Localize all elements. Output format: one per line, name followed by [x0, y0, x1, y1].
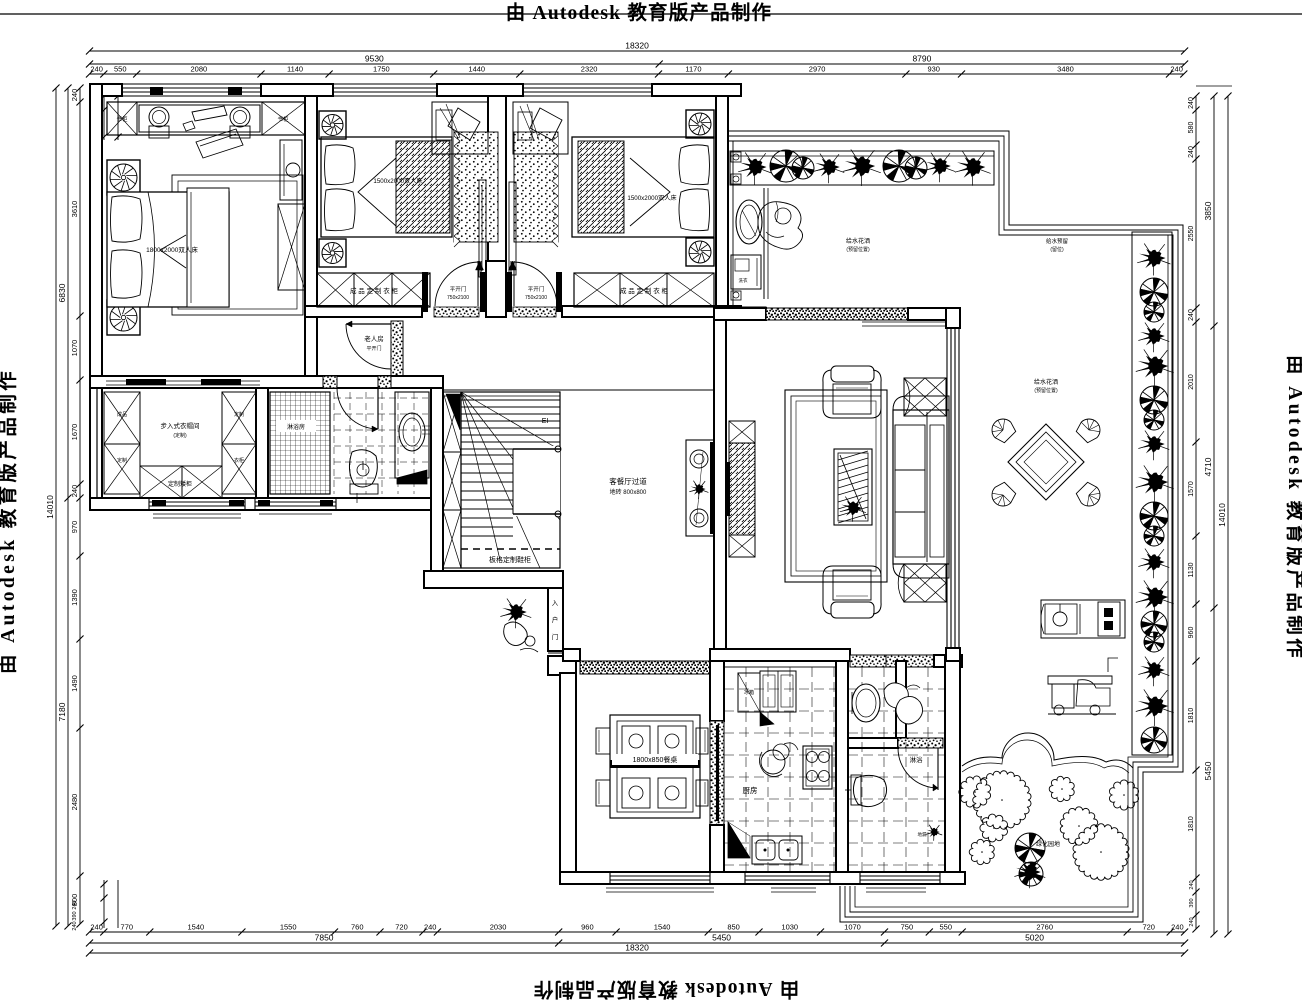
svg-text:770: 770 [121, 923, 134, 932]
svg-text:衣柜: 衣柜 [234, 457, 244, 464]
svg-text:960: 960 [1188, 627, 1195, 639]
svg-text:1810: 1810 [1188, 816, 1195, 832]
svg-text:240: 240 [90, 923, 103, 932]
svg-text:1030: 1030 [781, 923, 798, 932]
svg-text:定制: 定制 [234, 411, 244, 418]
svg-text:1490: 1490 [70, 675, 79, 692]
svg-text:由 Autodesk 教育版产品制作: 由 Autodesk 教育版产品制作 [506, 1, 772, 24]
svg-text:1570: 1570 [1188, 481, 1195, 497]
svg-text:580: 580 [1188, 122, 1195, 134]
svg-text:240: 240 [1188, 97, 1195, 109]
svg-text:240: 240 [1188, 146, 1195, 158]
svg-text:老人房: 老人房 [364, 334, 384, 343]
svg-text:入: 入 [552, 600, 559, 607]
svg-text:1140: 1140 [287, 65, 303, 74]
svg-text:550: 550 [939, 923, 952, 932]
svg-text:750x2100: 750x2100 [525, 295, 547, 301]
svg-text:7180: 7180 [57, 702, 67, 721]
svg-text:18320: 18320 [625, 41, 649, 51]
svg-text:(定制): (定制) [173, 432, 187, 439]
svg-text:2010: 2010 [1188, 374, 1195, 390]
svg-text:5450: 5450 [1203, 761, 1213, 780]
svg-text:750: 750 [901, 923, 914, 932]
svg-text:240: 240 [1171, 923, 1184, 932]
svg-text:550: 550 [114, 65, 127, 74]
svg-text:1440: 1440 [468, 65, 485, 74]
svg-text:1540: 1540 [188, 923, 205, 932]
svg-text:平开门: 平开门 [366, 345, 381, 352]
svg-text:定制矮柜: 定制矮柜 [168, 480, 192, 488]
svg-text:1540: 1540 [654, 923, 671, 932]
svg-text:390: 390 [1189, 898, 1195, 907]
svg-text:2320: 2320 [581, 65, 598, 74]
svg-text:8790: 8790 [912, 54, 931, 64]
svg-text:240: 240 [70, 89, 79, 102]
svg-text:门: 门 [552, 632, 559, 641]
svg-text:1810: 1810 [1188, 708, 1195, 724]
svg-text:由 Autodesk 教育版产品制作: 由 Autodesk 教育版产品制作 [533, 978, 799, 1001]
svg-text:1130: 1130 [1188, 562, 1195, 577]
svg-text:步入式衣帽间: 步入式衣帽间 [161, 421, 200, 430]
svg-text:1170: 1170 [685, 65, 701, 74]
svg-text:成 品 定 制 衣 柜: 成 品 定 制 衣 柜 [620, 286, 669, 295]
svg-text:1070: 1070 [70, 340, 79, 357]
svg-text:EI: EI [542, 418, 549, 425]
svg-text:(预留位置): (预留位置) [846, 246, 870, 253]
svg-text:760: 760 [351, 923, 364, 932]
svg-text:1800x850餐桌: 1800x850餐桌 [633, 755, 678, 764]
svg-text:冰箱: 冰箱 [744, 689, 754, 696]
svg-text:客餐厅过道: 客餐厅过道 [609, 476, 647, 486]
svg-text:板格定制鞋柜: 板格定制鞋柜 [489, 555, 531, 564]
svg-text:地砖 800x800: 地砖 800x800 [610, 488, 647, 496]
svg-text:2030: 2030 [490, 923, 507, 932]
svg-text:7850: 7850 [315, 933, 334, 943]
svg-text:9530: 9530 [365, 54, 384, 64]
svg-text:1800x2000双人床: 1800x2000双人床 [146, 245, 198, 254]
svg-text:240: 240 [1188, 309, 1195, 321]
svg-text:给水花洒: 给水花洒 [1034, 378, 1058, 386]
svg-text:3480: 3480 [1057, 65, 1074, 74]
svg-text:14010: 14010 [1217, 503, 1227, 527]
svg-text:750x2100: 750x2100 [447, 295, 469, 301]
svg-text:3850: 3850 [1203, 201, 1213, 220]
svg-text:成 品 定 制 衣 柜: 成 品 定 制 衣 柜 [350, 286, 399, 295]
svg-text:970: 970 [70, 521, 79, 534]
svg-text:960: 960 [581, 923, 594, 932]
svg-text:3610: 3610 [70, 201, 79, 218]
svg-text:240: 240 [1170, 65, 1183, 74]
svg-text:给水预留: 给水预留 [1046, 237, 1069, 245]
svg-text:850: 850 [727, 923, 740, 932]
svg-text:书柜: 书柜 [116, 115, 128, 123]
svg-text:平开门: 平开门 [450, 285, 467, 293]
svg-text:1500x2000双人床: 1500x2000双人床 [627, 194, 676, 202]
svg-text:240: 240 [72, 921, 78, 930]
svg-text:淋浴房: 淋浴房 [287, 423, 305, 431]
svg-text:洗衣: 洗衣 [739, 277, 748, 284]
svg-text:18320: 18320 [625, 943, 649, 953]
svg-text:给水花洒: 给水花洒 [846, 237, 870, 245]
svg-text:240: 240 [1189, 880, 1195, 889]
svg-text:2550: 2550 [1188, 226, 1195, 242]
svg-text:720: 720 [1142, 923, 1155, 932]
svg-text:720: 720 [395, 923, 408, 932]
svg-text:240: 240 [72, 900, 78, 909]
svg-text:绿化园地: 绿化园地 [1036, 840, 1060, 848]
svg-text:1500x2000双人床: 1500x2000双人床 [373, 177, 422, 185]
svg-text:240: 240 [90, 65, 103, 74]
svg-text:地漏: 地漏 [918, 831, 927, 838]
svg-text:2970: 2970 [809, 65, 826, 74]
svg-text:厨房: 厨房 [743, 785, 758, 795]
svg-text:1750: 1750 [373, 65, 390, 74]
svg-text:6830: 6830 [57, 283, 67, 302]
svg-text:930: 930 [927, 65, 940, 74]
svg-text:户: 户 [552, 615, 559, 624]
svg-text:1670: 1670 [70, 424, 79, 441]
svg-text:1070: 1070 [844, 923, 861, 932]
svg-text:平开门: 平开门 [528, 285, 545, 293]
svg-text:2480: 2480 [70, 794, 79, 811]
svg-text:5020: 5020 [1025, 933, 1044, 943]
svg-text:定制: 定制 [117, 457, 127, 464]
svg-text:书柜: 书柜 [277, 115, 289, 123]
svg-text:4710: 4710 [1203, 457, 1213, 476]
svg-text:14010: 14010 [45, 495, 55, 519]
svg-text:1550: 1550 [280, 923, 297, 932]
svg-text:240: 240 [1189, 917, 1195, 926]
svg-text:2080: 2080 [191, 65, 208, 74]
svg-text:由 Autodesk 教育版产品制作: 由 Autodesk 教育版产品制作 [0, 368, 19, 674]
svg-text:240: 240 [424, 923, 437, 932]
svg-text:由 Autodesk 教育版产品制作: 由 Autodesk 教育版产品制作 [1284, 355, 1302, 661]
svg-text:1390: 1390 [70, 589, 79, 606]
svg-text:390: 390 [72, 911, 78, 920]
svg-text:5450: 5450 [712, 933, 731, 943]
svg-text:成品: 成品 [117, 411, 127, 418]
svg-text:淋浴: 淋浴 [910, 755, 924, 764]
svg-text:(预留位置): (预留位置) [1034, 387, 1058, 394]
svg-text:(留位): (留位) [1050, 246, 1064, 253]
svg-text:2760: 2760 [1036, 923, 1053, 932]
